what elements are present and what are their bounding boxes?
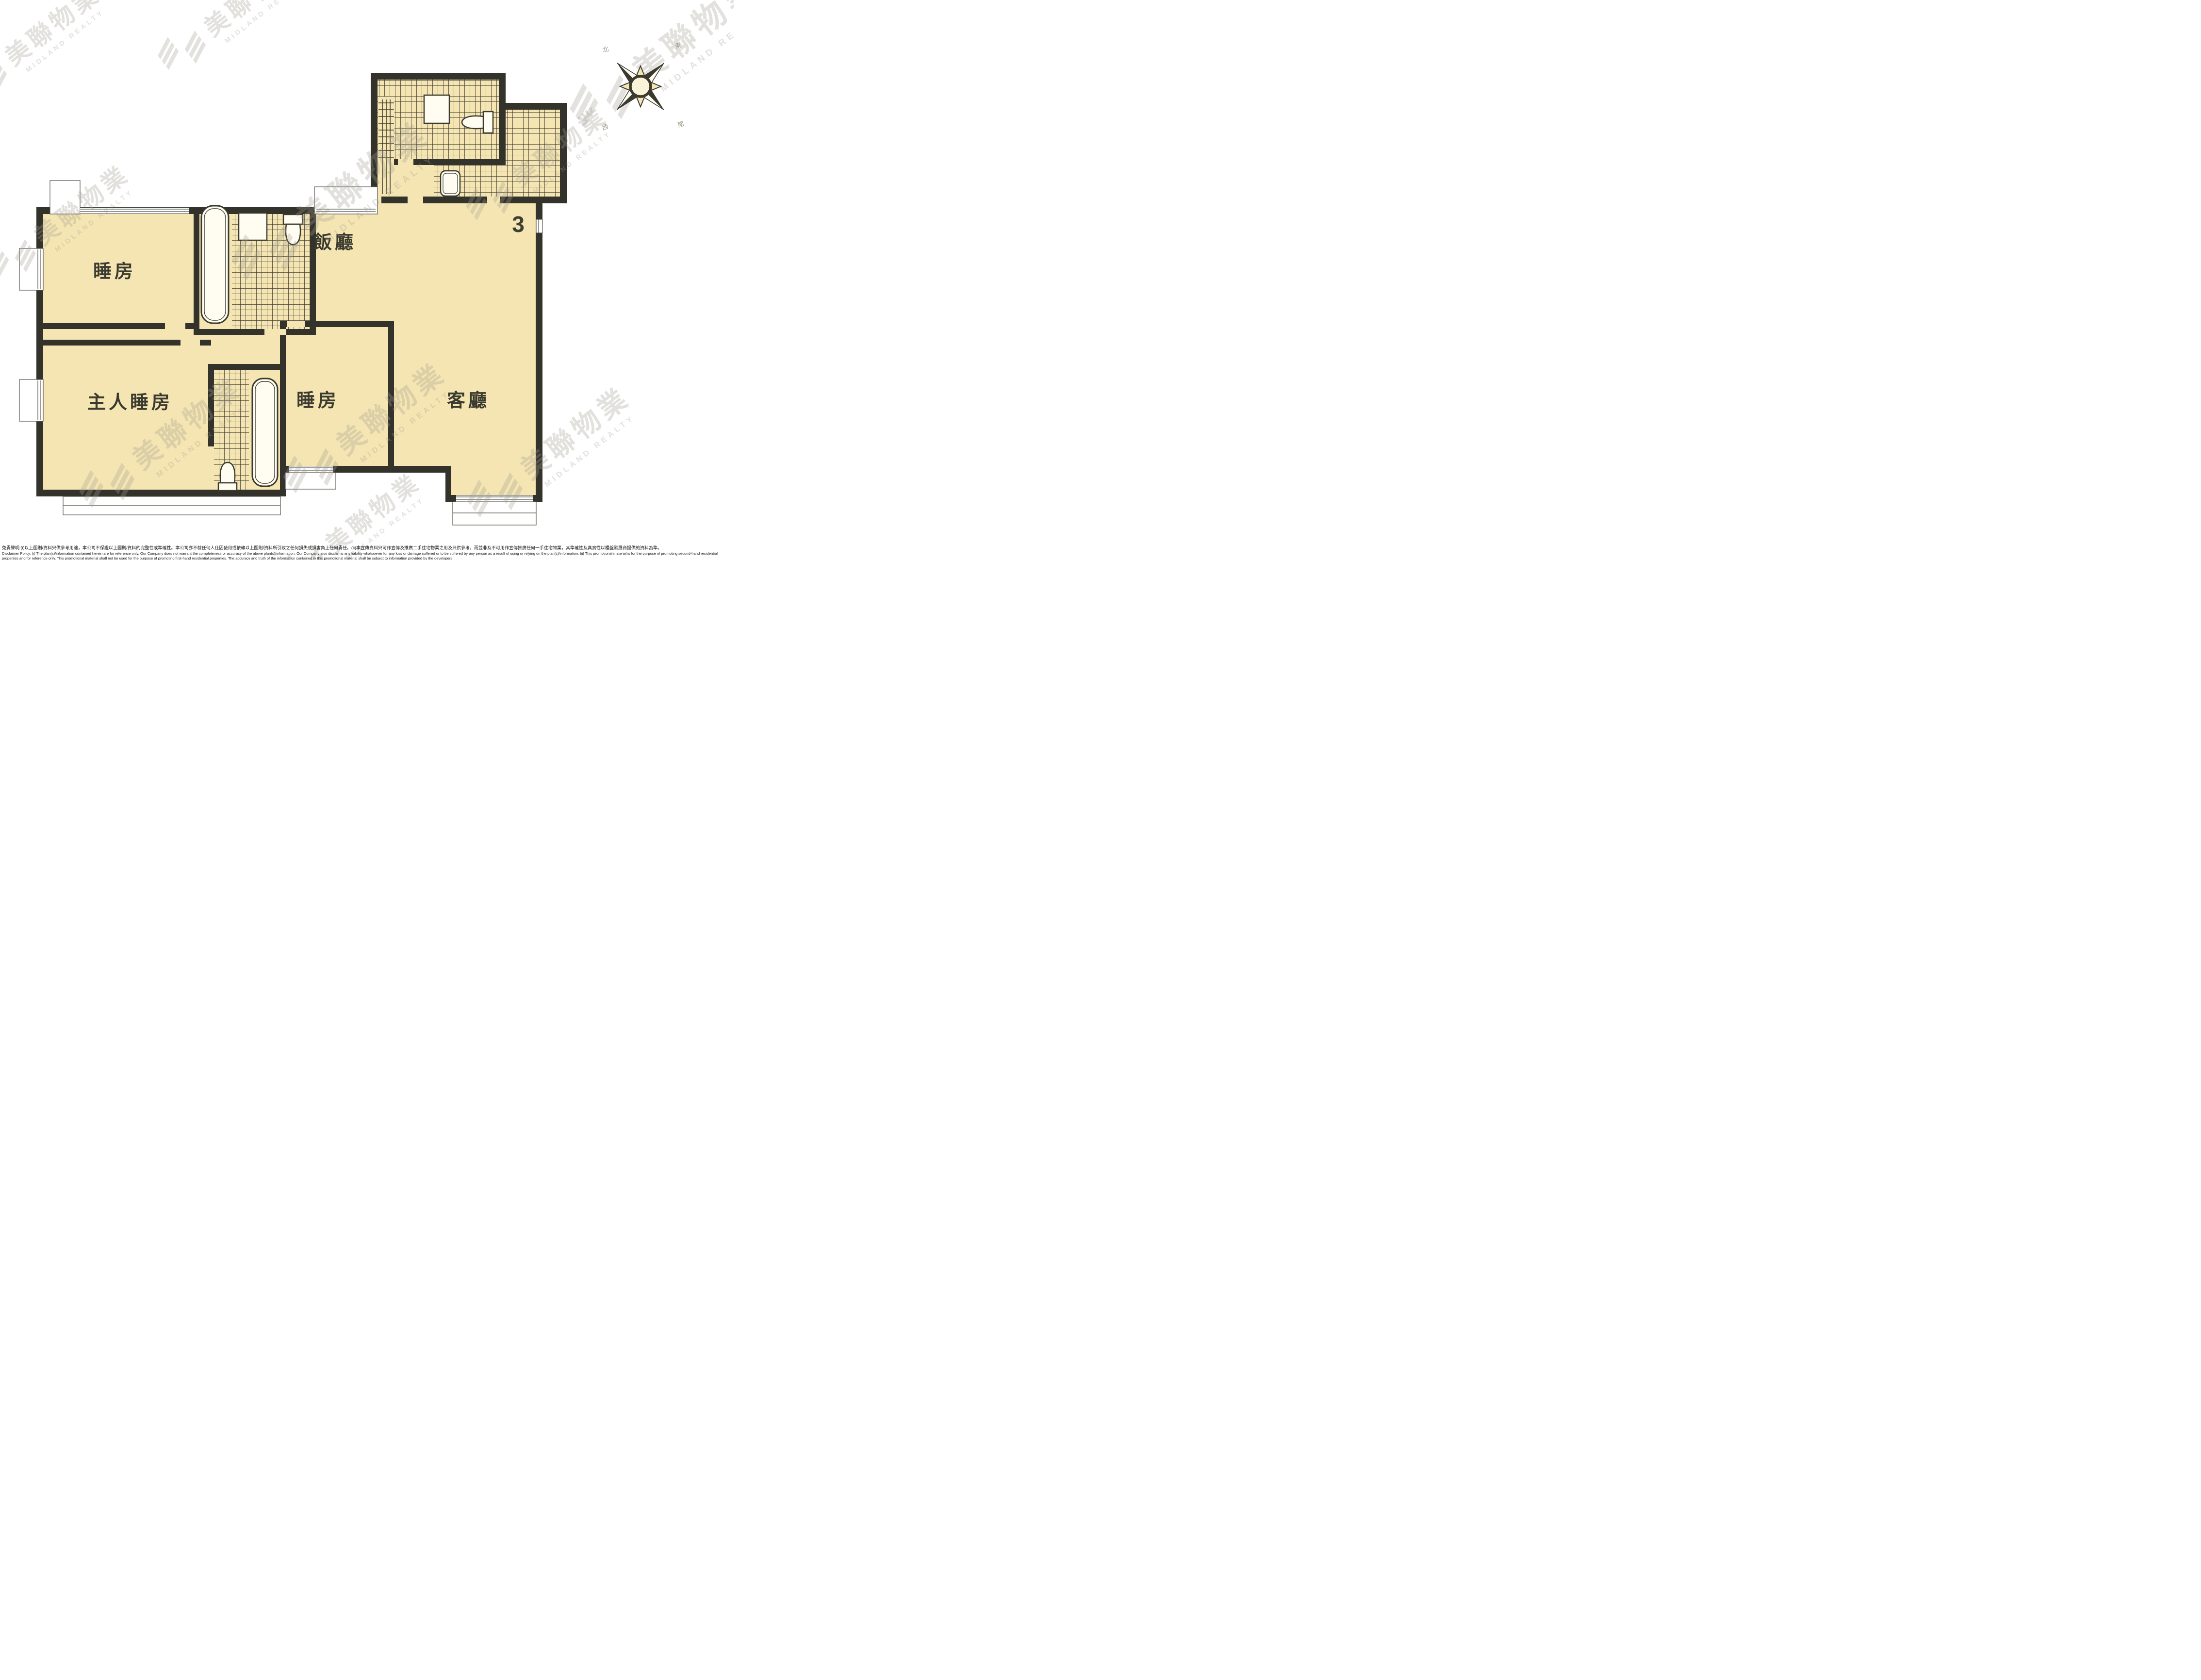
room-label-bedroom-2: 睡房 (296, 391, 339, 411)
disclaimer: 免責聲明:(i)以上圖則/資料只供參考用途，本公司不保證以上圖則/資料的完整性或… (2, 544, 732, 560)
bathtub-icon (201, 206, 229, 323)
door-bedroom1 (165, 323, 185, 329)
wall-master-bottom (36, 490, 286, 496)
wall-annex-top (371, 73, 506, 80)
wall-ensuite-top (208, 364, 286, 370)
door-ensuite (208, 446, 214, 469)
wall-bedroom2-left (280, 321, 286, 496)
compass-label-nw: 北 (602, 45, 609, 54)
door-master-bedroom (181, 340, 200, 346)
watermark-cn: 美聯物業 (0, 0, 105, 71)
bathtub-icon (252, 379, 278, 486)
compass-label-se: 南 (677, 120, 685, 129)
midland-logo-icon (152, 21, 211, 79)
window-living-right (536, 219, 542, 233)
wall-top-bathroom-right (499, 73, 506, 165)
wall-bedroom1-right (194, 207, 199, 335)
door-bedroom2 (287, 321, 305, 327)
shower-tray-icon (239, 213, 267, 240)
disclaimer-text-en: Disclaimer Policy: (i) The plan(s)/infor… (2, 551, 732, 560)
shower-tray-icon (424, 95, 449, 123)
room-label-living: 客廳 (447, 390, 490, 411)
window-living-bay (453, 495, 536, 525)
unit-number: 3 (512, 212, 525, 237)
floor-plan: 睡房 飯廳 主人睡房 睡房 客廳 3 美聯物業 MIDLAND REALTY 美… (0, 0, 734, 560)
watermark: 美聯物業 MIDLAND REALTY (0, 0, 112, 112)
door-kitchen-left (408, 197, 423, 203)
watermark: 美聯物業 MIDLAND REALTY (152, 0, 311, 83)
floor-plan-page: 睡房 飯廳 主人睡房 睡房 客廳 3 美聯物業 MIDLAND REALTY 美… (0, 0, 734, 560)
room-label-bedroom-1: 睡房 (93, 262, 136, 282)
window-left-lower (19, 379, 43, 421)
disclaimer-text-zh: 免責聲明:(i)以上圖則/資料只供參考用途，本公司不保證以上圖則/資料的完整性或… (2, 544, 732, 551)
room-label-master-bedroom: 主人睡房 (87, 393, 173, 413)
wall-kitchen-top (499, 103, 567, 110)
wall-guest-bath-bottom (194, 329, 316, 335)
compass-hub (630, 76, 651, 97)
door-guest-bathroom (264, 329, 286, 335)
